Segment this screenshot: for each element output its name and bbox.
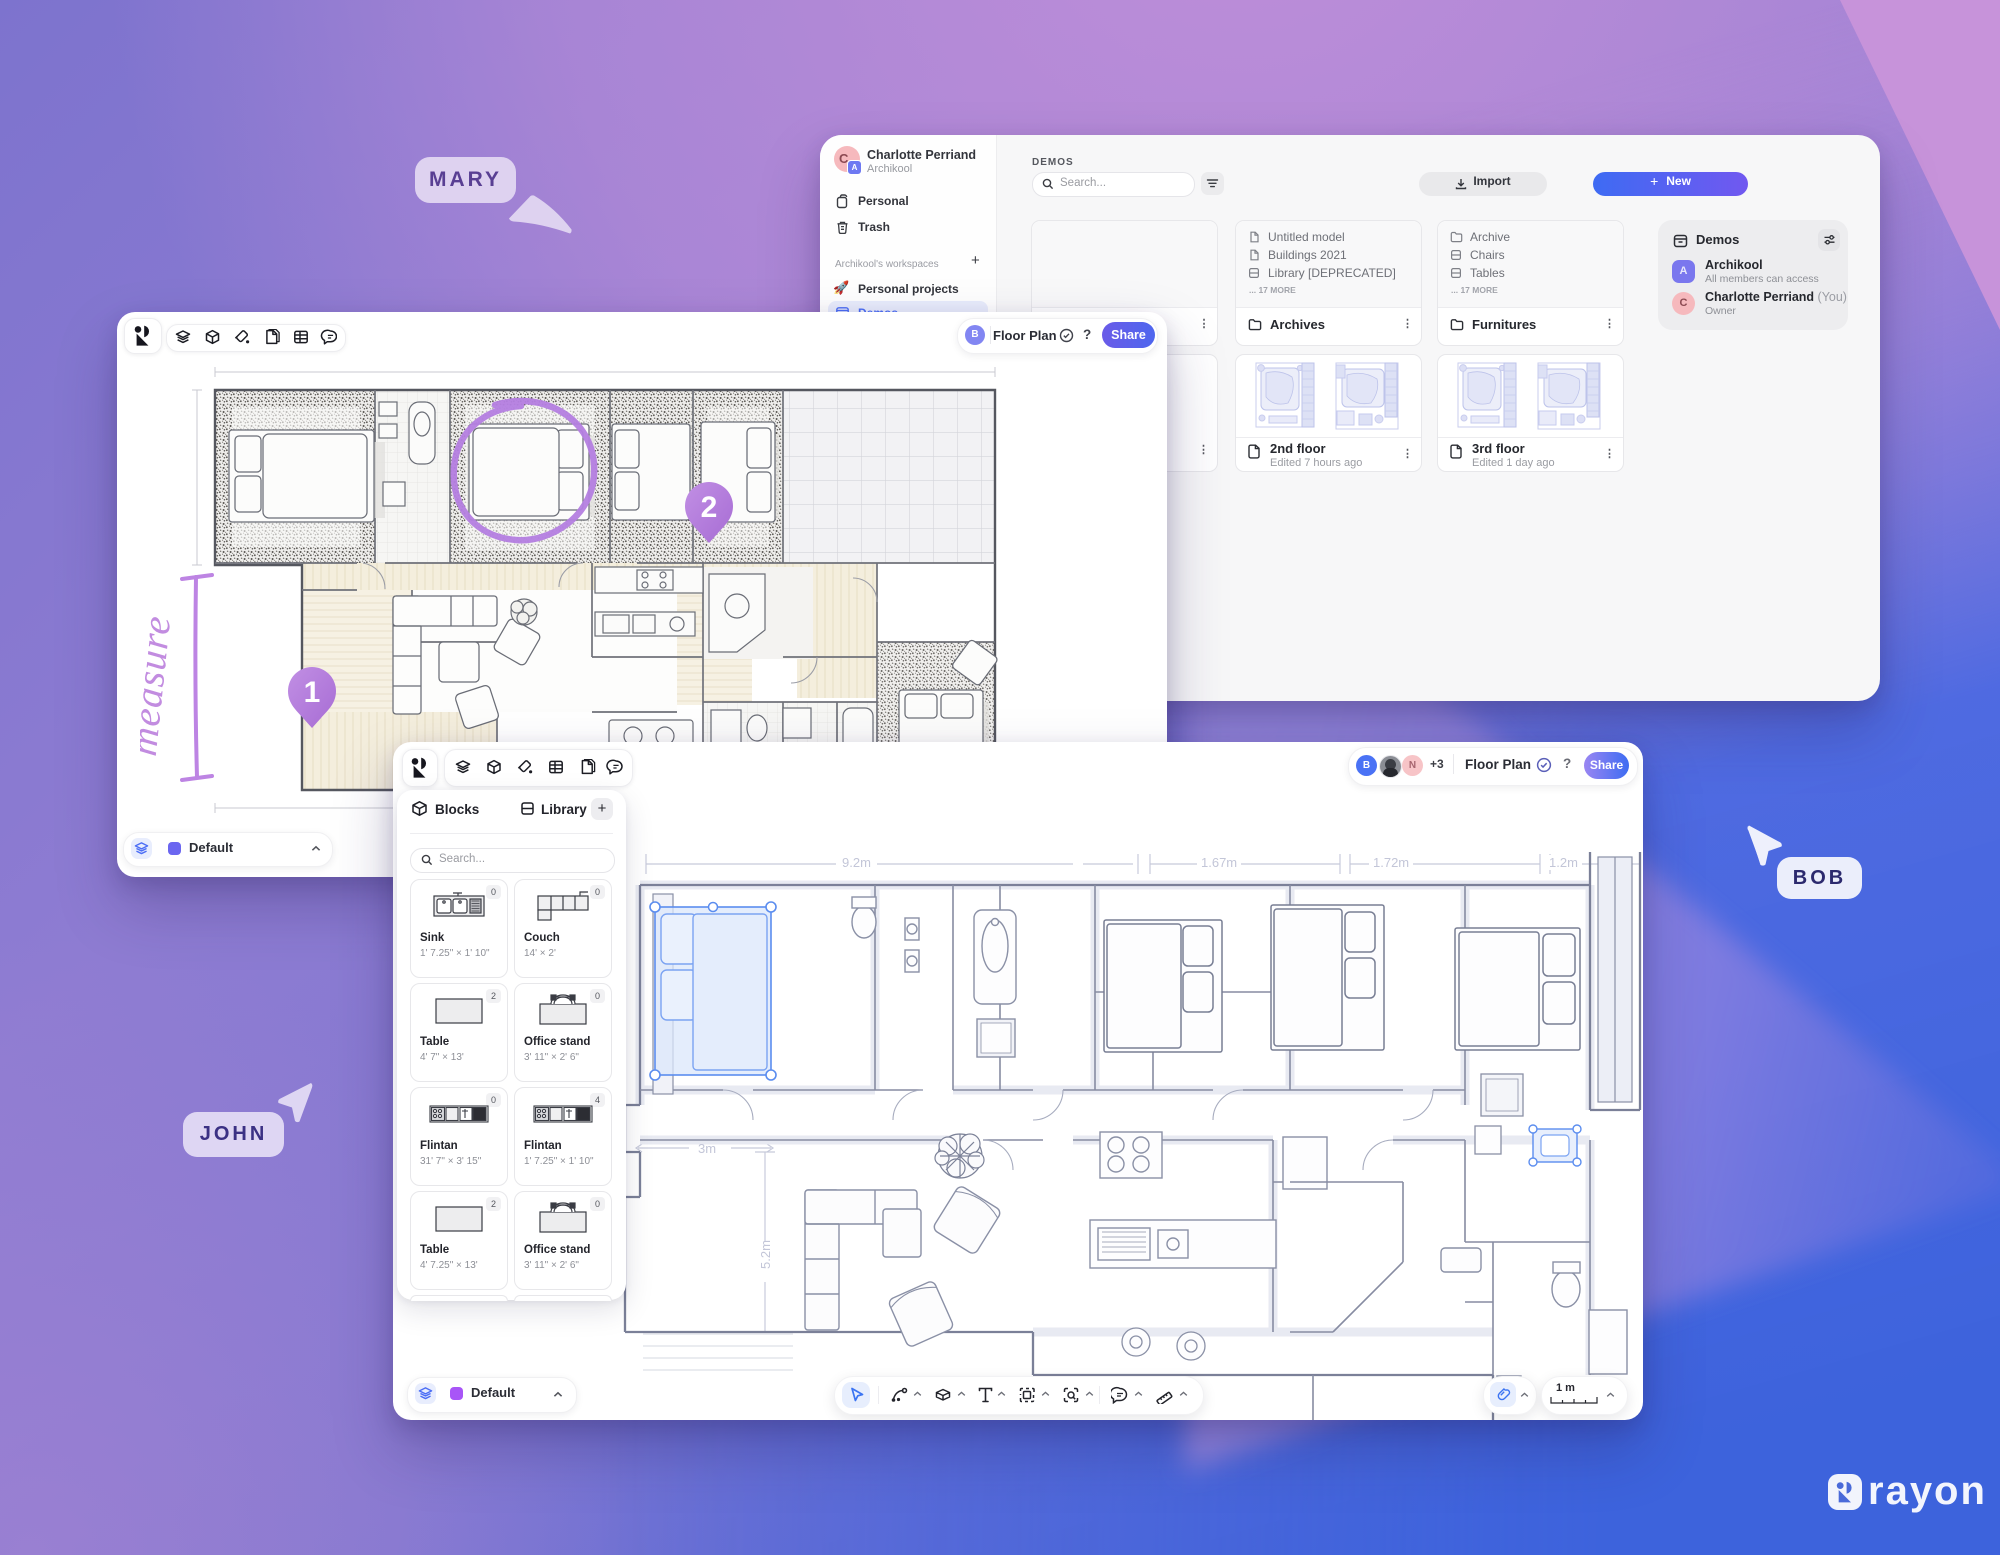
svg-text:measure: measure bbox=[140, 613, 179, 758]
svg-text:2: 2 bbox=[701, 491, 718, 524]
svg-text:1: 1 bbox=[304, 676, 321, 709]
